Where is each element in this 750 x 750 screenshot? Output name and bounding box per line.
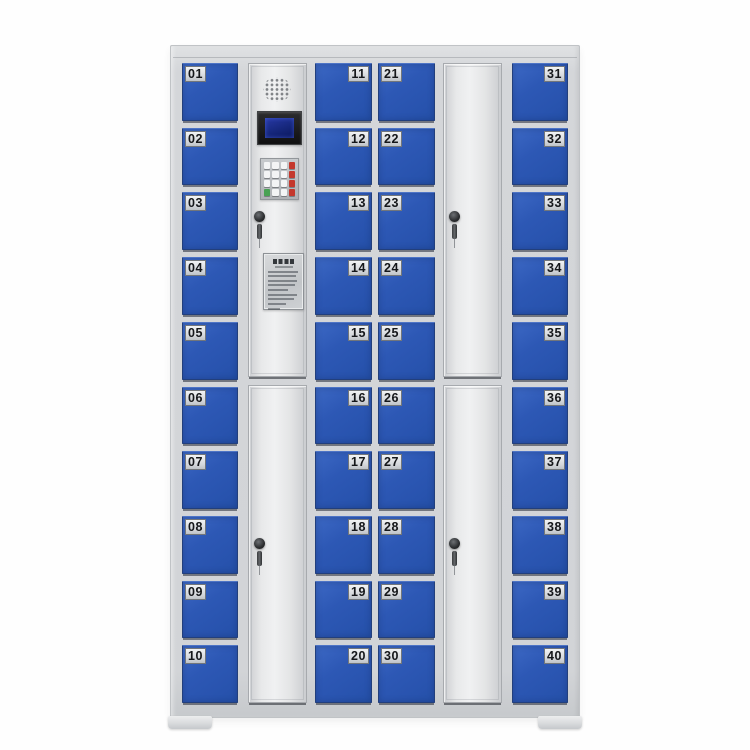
- locker-door-13: 13: [315, 192, 372, 250]
- upper-door-key-lock-icon: [447, 211, 461, 248]
- locker-number-plate: 33: [544, 195, 565, 211]
- key-icon: [257, 551, 262, 566]
- locker-number-plate: 18: [348, 519, 369, 535]
- locker-number-plate: 32: [544, 131, 565, 147]
- locker-door-33: 33: [512, 192, 568, 250]
- locker-door-03: 03: [182, 192, 238, 250]
- locker-door-09: 09: [182, 581, 238, 639]
- locker-bank-2: 11121314151617181920: [315, 63, 372, 703]
- locker-number-plate: 03: [185, 195, 206, 211]
- lower-door-key-lock-icon: [252, 538, 266, 575]
- keypad-key-red: [289, 162, 295, 169]
- lcd-display: [257, 111, 302, 145]
- locker-number-plate: 10: [185, 648, 206, 664]
- locker-door-25: 25: [378, 322, 435, 380]
- locker-number-plate: 09: [185, 584, 206, 600]
- keypad-key-red: [289, 180, 295, 187]
- locker-number-plate: 23: [381, 195, 402, 211]
- locker-number-plate: 35: [544, 325, 565, 341]
- instruction-placard: [263, 253, 304, 310]
- locker-bank-1: 01020304050607080910: [182, 63, 238, 703]
- locker-bank-3: 21222324252627282930: [378, 63, 435, 703]
- locker-door-30: 30: [378, 645, 435, 703]
- keypad-key-white: [281, 189, 287, 196]
- locker-door-21: 21: [378, 63, 435, 121]
- locker-door-01: 01: [182, 63, 238, 121]
- locker-number-plate: 12: [348, 131, 369, 147]
- locker-door-14: 14: [315, 257, 372, 315]
- locker-door-34: 34: [512, 257, 568, 315]
- locker-number-plate: 38: [544, 519, 565, 535]
- locker-number-plate: 25: [381, 325, 402, 341]
- locker-number-plate: 31: [544, 66, 565, 82]
- locker-number-plate: 39: [544, 584, 565, 600]
- locker-door-02: 02: [182, 128, 238, 186]
- locker-number-plate: 24: [381, 260, 402, 276]
- locker-door-08: 08: [182, 516, 238, 574]
- large-upper-door: [443, 63, 502, 377]
- lock-cylinder-icon: [449, 538, 460, 549]
- placard-subtitle: [275, 266, 293, 268]
- locker-door-37: 37: [512, 451, 568, 509]
- key-string: [454, 239, 455, 248]
- lcd-screen: [265, 118, 294, 138]
- keypad-key-white: [272, 189, 278, 196]
- locker-number-plate: 04: [185, 260, 206, 276]
- keypad-key-white: [272, 162, 278, 169]
- locker-door-28: 28: [378, 516, 435, 574]
- locker-number-plate: 20: [348, 648, 369, 664]
- locker-number-plate: 34: [544, 260, 565, 276]
- lock-cylinder-icon: [254, 211, 265, 222]
- locker-number-plate: 28: [381, 519, 402, 535]
- keypad-key-white: [264, 171, 270, 178]
- keypad-key-green: [264, 189, 270, 196]
- cabinet-foot-left: [168, 716, 212, 729]
- large-door-column: [443, 63, 502, 703]
- locker-number-plate: 29: [381, 584, 402, 600]
- locker-number-plate: 01: [185, 66, 206, 82]
- locker-number-plate: 30: [381, 648, 402, 664]
- keypad-key-white: [264, 180, 270, 187]
- locker-door-40: 40: [512, 645, 568, 703]
- locker-number-plate: 08: [185, 519, 206, 535]
- locker-number-plate: 02: [185, 131, 206, 147]
- locker-door-19: 19: [315, 581, 372, 639]
- locker-number-plate: 27: [381, 454, 402, 470]
- locker-door-23: 23: [378, 192, 435, 250]
- keypad-key-white: [281, 180, 287, 187]
- locker-door-32: 32: [512, 128, 568, 186]
- lower-door-key-lock-icon: [447, 538, 461, 575]
- locker-bank-4: 31323334353637383940: [512, 63, 568, 703]
- key-icon: [452, 551, 457, 566]
- locker-door-17: 17: [315, 451, 372, 509]
- locker-number-plate: 19: [348, 584, 369, 600]
- locker-cabinet: 01020304050607080910: [170, 45, 580, 718]
- locker-number-plate: 26: [381, 390, 402, 406]
- placard-title: [273, 259, 295, 264]
- locker-door-16: 16: [315, 387, 372, 445]
- control-column: [248, 63, 307, 703]
- locker-door-20: 20: [315, 645, 372, 703]
- keypad-key-white: [281, 171, 287, 178]
- locker-door-10: 10: [182, 645, 238, 703]
- keypad-key-white: [281, 162, 287, 169]
- locker-door-38: 38: [512, 516, 568, 574]
- control-column-lower-door: [248, 385, 307, 703]
- locker-number-plate: 05: [185, 325, 206, 341]
- cabinet-foot-right: [538, 716, 582, 729]
- speaker-grille-icon: [263, 77, 291, 102]
- locker-door-12: 12: [315, 128, 372, 186]
- locker-door-24: 24: [378, 257, 435, 315]
- locker-number-plate: 17: [348, 454, 369, 470]
- panel-key-lock-icon: [252, 211, 266, 248]
- keypad-key-white: [272, 180, 278, 187]
- locker-number-plate: 16: [348, 390, 369, 406]
- locker-number-plate: 13: [348, 195, 369, 211]
- locker-door-18: 18: [315, 516, 372, 574]
- locker-door-11: 11: [315, 63, 372, 121]
- locker-number-plate: 07: [185, 454, 206, 470]
- locker-door-31: 31: [512, 63, 568, 121]
- locker-number-plate: 40: [544, 648, 565, 664]
- key-string: [259, 239, 260, 248]
- keypad: [260, 158, 299, 200]
- locker-door-26: 26: [378, 387, 435, 445]
- locker-door-22: 22: [378, 128, 435, 186]
- key-string: [259, 566, 260, 575]
- control-panel-section: [248, 63, 307, 377]
- large-lower-door: [443, 385, 502, 703]
- locker-door-27: 27: [378, 451, 435, 509]
- locker-door-07: 07: [182, 451, 238, 509]
- locker-number-plate: 21: [381, 66, 402, 82]
- locker-number-plate: 06: [185, 390, 206, 406]
- locker-number-plate: 14: [348, 260, 369, 276]
- key-string: [454, 566, 455, 575]
- keypad-key-white: [264, 162, 270, 169]
- locker-number-plate: 15: [348, 325, 369, 341]
- keypad-key-white: [272, 171, 278, 178]
- locker-door-06: 06: [182, 387, 238, 445]
- locker-product-photo: 01020304050607080910: [0, 0, 750, 750]
- locker-number-plate: 11: [348, 66, 369, 82]
- locker-door-29: 29: [378, 581, 435, 639]
- lock-cylinder-icon: [449, 211, 460, 222]
- locker-door-04: 04: [182, 257, 238, 315]
- locker-door-05: 05: [182, 322, 238, 380]
- lock-cylinder-icon: [254, 538, 265, 549]
- keypad-key-red: [289, 189, 295, 196]
- locker-door-15: 15: [315, 322, 372, 380]
- locker-door-35: 35: [512, 322, 568, 380]
- locker-door-36: 36: [512, 387, 568, 445]
- locker-number-plate: 22: [381, 131, 402, 147]
- locker-number-plate: 37: [544, 454, 565, 470]
- keypad-key-red: [289, 171, 295, 178]
- locker-door-39: 39: [512, 581, 568, 639]
- key-icon: [257, 224, 262, 239]
- key-icon: [452, 224, 457, 239]
- locker-number-plate: 36: [544, 390, 565, 406]
